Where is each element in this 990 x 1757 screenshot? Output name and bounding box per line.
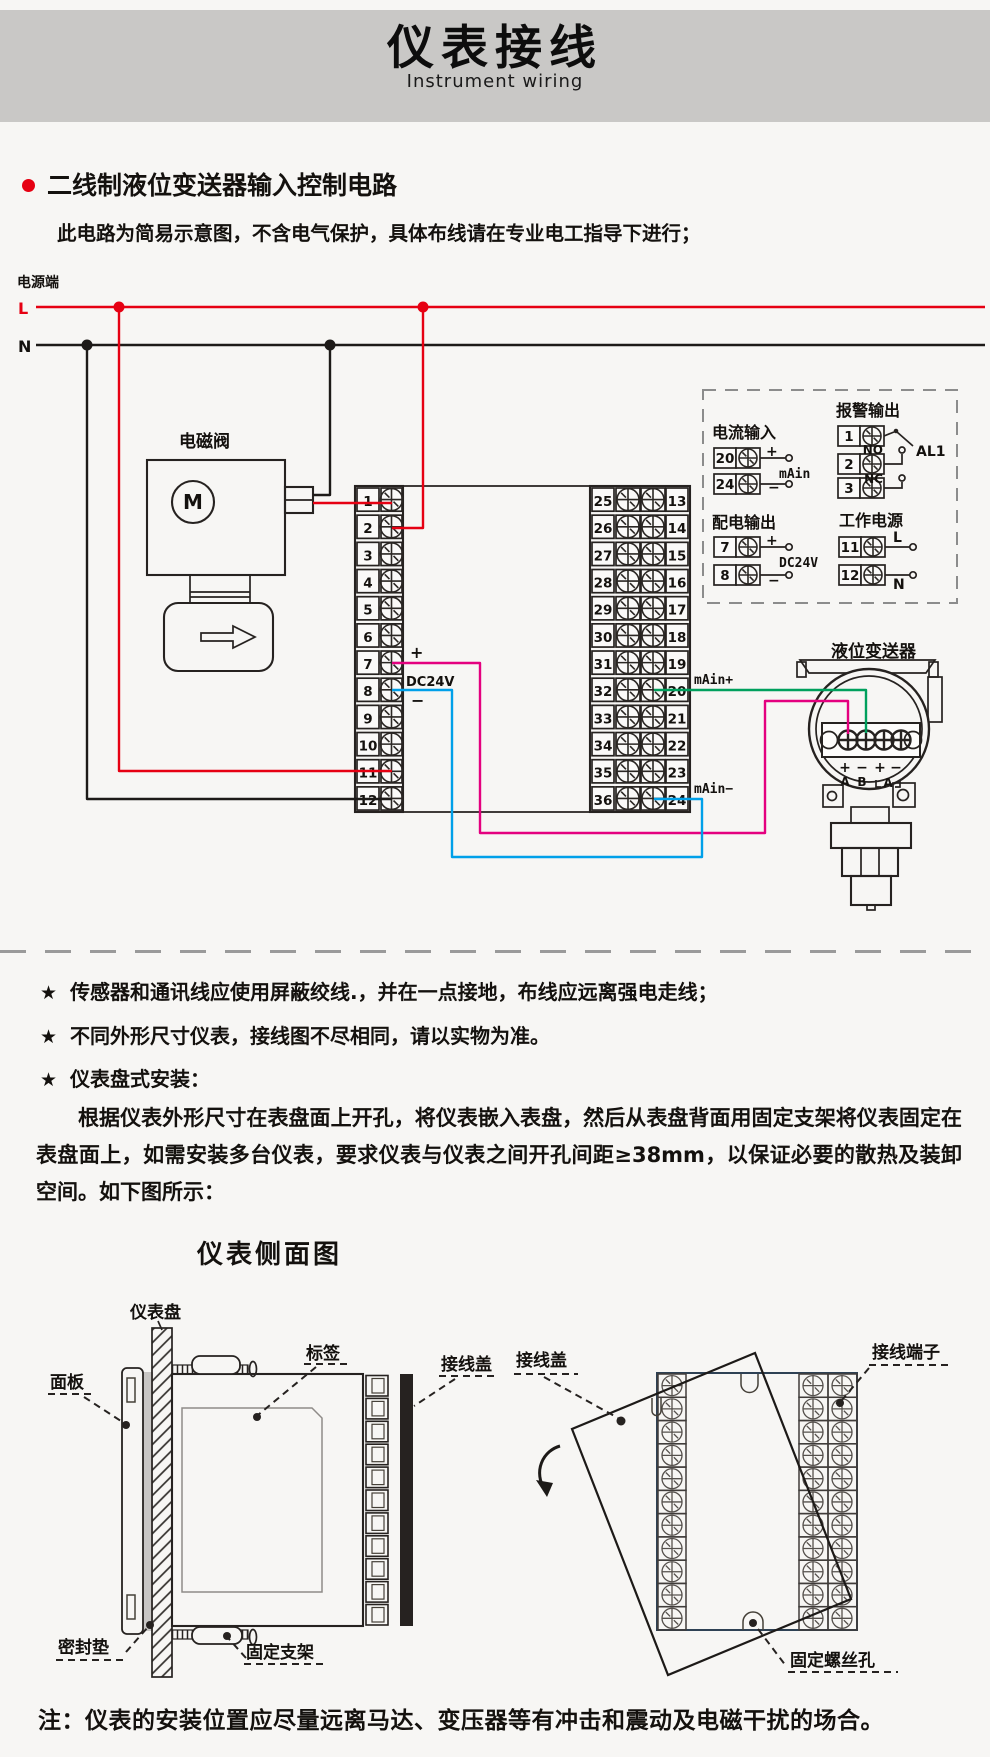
screw-terminal-icon (381, 624, 403, 646)
terminal-number: 25 (594, 494, 613, 510)
section-title: 二线制液位变送器输入控制电路 (47, 166, 397, 202)
terminal-number: 20 (716, 451, 735, 467)
screw-terminal-icon (864, 566, 882, 584)
transmitter-pin (857, 731, 876, 750)
line-n-label: N (18, 337, 31, 356)
wiring-diagram: 电源端 L N 电磁阀 M 123456789101112 2513261427… (0, 240, 990, 950)
pin-b-label: B (857, 775, 866, 789)
screw-terminal-icon (381, 597, 403, 619)
screw-terminal-icon (617, 543, 639, 565)
terminal-number: 12 (359, 793, 378, 809)
screw-terminal-icon (832, 1515, 852, 1535)
terminal-number: 10 (359, 739, 378, 755)
alarm-output-title: 报警输出 (836, 401, 900, 420)
ci-minus: − (768, 480, 780, 496)
terminal-number: 29 (594, 603, 613, 619)
terminal-number: 8 (720, 568, 729, 584)
main-minus-label: mAin− (694, 782, 733, 797)
terminal-number: 17 (668, 603, 687, 619)
screw-terminal-icon (617, 733, 639, 755)
screw-terminal-icon (662, 1562, 682, 1582)
terminal-number: 12 (841, 568, 860, 584)
screw-terminal-icon (662, 1585, 682, 1605)
screw-terminal-icon (803, 1585, 823, 1605)
screw-terminal-icon (617, 760, 639, 782)
wire-cover-label-left: 接线盖 (441, 1354, 492, 1375)
terminal-ladder (366, 1376, 388, 1626)
dashed-divider (0, 950, 990, 953)
terminal-number: 32 (594, 684, 613, 700)
red-bullet-icon (22, 179, 35, 192)
terminal-number: 23 (668, 766, 687, 782)
front-panel (122, 1368, 143, 1634)
line-l-label: L (18, 299, 28, 318)
screw-terminal-icon (642, 597, 664, 619)
screw-terminal-icon (617, 516, 639, 538)
screw-terminal-icon (642, 543, 664, 565)
rear-body (657, 1373, 857, 1630)
screw-terminal-icon (381, 733, 403, 755)
installation-diagram: 仪表盘 面板 标签 (0, 1290, 990, 1720)
screw-terminal-icon (832, 1376, 852, 1396)
screw-terminal-icon (739, 449, 757, 467)
screw-terminal-icon (617, 706, 639, 728)
note-row: ★不同外形尺寸仪表，接线图不尽相同，请以实物为准。 (40, 1020, 550, 1049)
instrument-body (172, 1374, 363, 1626)
screw-terminal-icon (662, 1422, 682, 1442)
page-subtitle: Instrument wiring (0, 71, 990, 92)
terminal-number: 6 (363, 630, 372, 646)
star-icon: ★ (40, 982, 70, 1004)
terminal-number: 7 (720, 540, 729, 556)
pin-a2-label: A (883, 776, 893, 790)
terminal-number: 9 (363, 711, 372, 727)
tag-label: 标签 (306, 1343, 341, 1364)
transmitter-label: 液位变送器 (831, 641, 917, 662)
screw-terminal-icon (739, 538, 757, 556)
terminal-number: 28 (594, 576, 613, 592)
panel-wall (152, 1328, 172, 1677)
terminal-number: 30 (594, 630, 613, 646)
pin-sign-2: − (856, 760, 868, 776)
page-title: 仪表接线 (0, 10, 990, 75)
black-wire-t12 (87, 345, 392, 799)
solenoid-label: 电磁阀 (179, 431, 230, 452)
current-input-title: 电流输入 (712, 423, 776, 442)
screw-terminal-icon (617, 679, 639, 701)
nc-label: NC (864, 472, 883, 486)
screw-terminal-icon (642, 760, 664, 782)
ci-label: mAin (779, 467, 810, 482)
label-area (182, 1408, 322, 1592)
header-banner: 仪表接线 Instrument wiring (0, 10, 990, 122)
terminal-number: 24 (668, 793, 687, 809)
terminal-number: 4 (363, 576, 372, 592)
wire-cover-bar (400, 1374, 413, 1626)
screw-terminal-icon (617, 570, 639, 592)
note-text: 不同外形尺寸仪表，接线图不尽相同，请以实物为准。 (70, 1024, 550, 1048)
screw-terminal-icon (803, 1445, 823, 1465)
star-icon: ★ (40, 1026, 70, 1048)
side-view: 仪表盘 面板 标签 (48, 1302, 499, 1677)
note-text: 传感器和通讯线应使用屏蔽绞线.，并在一点接地，布线应远离强电走线； (70, 980, 718, 1004)
motor-label: M (183, 490, 203, 514)
terminal-block-left: 123456789101112 (355, 486, 403, 812)
top-bracket (192, 1356, 240, 1374)
terminal-number: 8 (363, 684, 372, 700)
wire-cover-label-right: 接线盖 (516, 1350, 567, 1371)
side-view-title: 仪表侧面图 (197, 1234, 342, 1271)
note-row: ★传感器和通讯线应使用屏蔽绞线.，并在一点接地，布线应远离强电走线； (40, 976, 718, 1005)
terminal-number: 36 (594, 793, 613, 809)
terminal-number: 18 (668, 630, 687, 646)
gasket-label: 密封垫 (58, 1637, 109, 1658)
red-wire-t11 (119, 307, 392, 771)
terminal-number: 22 (668, 739, 687, 755)
power-terminal-label: 电源端 (17, 274, 59, 291)
terminals-label: 接线端子 (872, 1342, 940, 1363)
screw-terminal-icon (381, 570, 403, 592)
terminal-number: 16 (668, 576, 687, 592)
terminal-number: 3 (844, 481, 853, 497)
dc24v-label: DC24V (406, 675, 454, 690)
wp-n: N (893, 577, 905, 593)
screw-terminal-icon (662, 1492, 682, 1512)
screw-terminal-icon (803, 1399, 823, 1419)
work-power-title: 工作电源 (839, 511, 903, 530)
minus-sign: − (411, 691, 424, 710)
screw-terminal-icon (617, 652, 639, 674)
terminal-number: 11 (841, 540, 860, 556)
terminal-number: 2 (844, 457, 853, 473)
screw-terminal-icon (662, 1469, 682, 1489)
level-transmitter: 液位变送器 + − + − A B A (797, 641, 942, 910)
al1-label: AL1 (916, 444, 946, 460)
terminal-number: 19 (668, 657, 687, 673)
bottom-bracket (192, 1627, 242, 1644)
terminal-number: 11 (359, 766, 378, 782)
terminal-number: 27 (594, 548, 613, 564)
screw-terminal-icon (662, 1515, 682, 1535)
terminal-number: 13 (668, 494, 687, 510)
screw-terminal-icon (642, 706, 664, 728)
terminal-number: 34 (594, 739, 613, 755)
screw-terminal-icon (642, 652, 664, 674)
note-row: ★仪表盘式安装： (40, 1063, 210, 1092)
screw-terminal-icon (381, 516, 403, 538)
no-label: NO (863, 443, 883, 457)
screw-terminal-icon (617, 489, 639, 511)
screw-terminal-icon (739, 566, 757, 584)
terminal-number: 1 (844, 429, 853, 445)
power-output-title: 配电输出 (712, 513, 776, 532)
rear-view: 接线盖 接线端子 固定螺丝孔 (514, 1342, 953, 1675)
screw-terminal-icon (617, 597, 639, 619)
screw-terminal-icon (662, 1399, 682, 1419)
screw-terminal-icon (832, 1492, 852, 1512)
footer-note: 注：仪表的安装位置应尽量远离马达、变压器等有冲击和震动及电磁干扰的场合。 (38, 1701, 884, 1735)
plus-sign: + (410, 643, 423, 662)
po-label: DC24V (779, 556, 818, 571)
screw-terminal-icon (832, 1469, 852, 1489)
manual-page: 仪表接线 Instrument wiring 二线制液位变送器输入控制电路 此电… (0, 0, 990, 1757)
terminal-number: 35 (594, 766, 613, 782)
screw-terminal-icon (864, 538, 882, 556)
pin-sign-1: + (839, 760, 851, 776)
wp-l: L (893, 530, 902, 546)
screw-terminal-icon (642, 489, 664, 511)
screw-terminal-icon (381, 489, 403, 511)
install-paragraph: 根据仪表外形尺寸在表盘面上开孔，将仪表嵌入表盘，然后从表盘背面用固定支架将仪表固… (36, 1100, 962, 1211)
screw-terminal-icon (803, 1376, 823, 1396)
terminal-number: 14 (668, 521, 687, 537)
screw-terminal-icon (642, 624, 664, 646)
screw-terminal-icon (662, 1608, 682, 1628)
front-panel-label: 面板 (50, 1372, 85, 1393)
rear-terminal-strips (658, 1374, 857, 1630)
screw-terminal-icon (832, 1608, 852, 1628)
pin-sign-4: − (890, 760, 902, 776)
terminal-number: 15 (668, 548, 687, 564)
screw-terminal-icon (662, 1538, 682, 1558)
screw-terminal-icon (832, 1445, 852, 1465)
terminal-number: 24 (716, 477, 735, 493)
solenoid-valve: 电磁阀 M (147, 431, 313, 671)
legend-box: 电流输入 2024123781112 + − mAin 报警输出 NO NC A… (703, 390, 957, 603)
panel-board-label: 仪表盘 (129, 1302, 181, 1323)
terminal-number: 21 (668, 711, 687, 727)
terminal-number: 26 (594, 521, 613, 537)
screw-terminal-icon (739, 475, 757, 493)
terminal-number: 31 (594, 657, 613, 673)
screw-terminal-icon (803, 1538, 823, 1558)
screw-terminal-icon (642, 733, 664, 755)
terminal-number: 3 (363, 548, 372, 564)
screw-terminal-icon (803, 1422, 823, 1442)
terminal-number: 33 (594, 711, 613, 727)
terminal-block-right: 2513261427152816291730183119322033213422… (590, 486, 690, 812)
screw-hole-label: 固定螺丝孔 (790, 1650, 875, 1671)
screw-terminal-icon (642, 570, 664, 592)
terminal-number: 7 (363, 657, 372, 673)
top-notch (741, 1374, 758, 1393)
terminal-number: 20 (668, 684, 687, 700)
main-plus-label: mAin+ (694, 673, 733, 688)
flow-arrow-icon (201, 626, 255, 648)
star-icon: ★ (40, 1069, 70, 1091)
terminal-number: 5 (363, 603, 372, 619)
black-wire-solenoid (313, 345, 330, 495)
screw-terminal-icon (832, 1422, 852, 1442)
screw-terminal-icon (803, 1562, 823, 1582)
screw-terminal-icon (617, 624, 639, 646)
screw-terminal-icon (642, 516, 664, 538)
terminal-number: 2 (363, 521, 372, 537)
pin-a-label: A (840, 775, 850, 789)
screw-terminal-icon (381, 706, 403, 728)
screw-terminal-icon (863, 455, 881, 473)
pin-sign-3: + (874, 760, 886, 776)
screw-terminal-icon (662, 1445, 682, 1465)
bracket-label: 固定支架 (246, 1642, 314, 1663)
note-text: 仪表盘式安装： (70, 1067, 210, 1091)
screw-terminal-icon (617, 787, 639, 809)
screw-terminal-icon (381, 543, 403, 565)
